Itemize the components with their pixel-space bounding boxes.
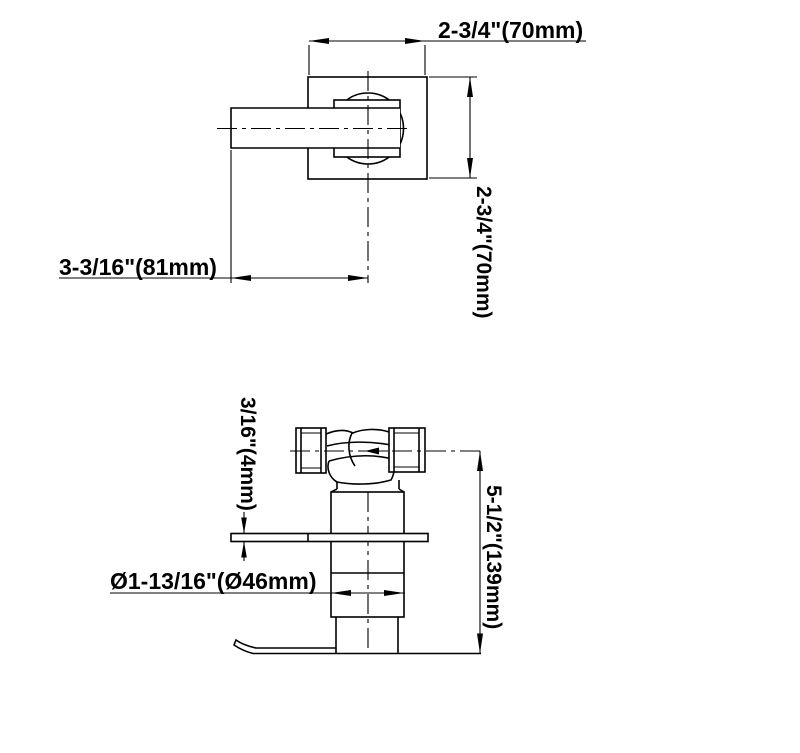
valve-body-top-curve <box>326 429 389 434</box>
arrowhead-up-icon <box>241 542 247 558</box>
arrowhead-up-icon <box>467 77 473 97</box>
dim-plate-height: 2-3/4"(70mm) <box>429 77 495 319</box>
arrowhead-left-icon <box>365 448 379 455</box>
dim-spout-reach-label: 3-3/16"(81mm) <box>59 254 217 280</box>
dim-body-diameter-label: Ø1-13/16"(Ø46mm) <box>110 568 317 594</box>
arrowhead-right-icon <box>405 38 425 44</box>
dim-plate-height-label: 2-3/4"(70mm) <box>472 186 495 319</box>
technical-drawing: 2-3/4"(70mm) 2-3/4"(70mm) 3-3/16"(81mm) <box>0 0 800 753</box>
flow-direction-arrow <box>365 448 388 455</box>
hex-nut-right <box>389 428 425 472</box>
top-view: 2-3/4"(70mm) 2-3/4"(70mm) 3-3/16"(81mm) <box>59 17 586 319</box>
side-view: 3/16"(4mm) Ø1-13/16"(Ø46mm) 5-1/2"(139mm… <box>110 397 505 654</box>
valve-body-upper-curve <box>327 442 391 446</box>
handle-lever <box>234 640 336 654</box>
valve-body-bell <box>328 456 394 484</box>
arrowhead-right-icon <box>348 275 368 281</box>
arrowhead-up-icon <box>477 451 483 471</box>
dim-plate-width-label: 2-3/4"(70mm) <box>438 17 583 43</box>
valve-body-seam-curve <box>349 433 355 466</box>
escutcheon-plate <box>231 534 428 542</box>
dim-total-height-label: 5-1/2"(139mm) <box>482 485 505 629</box>
dim-plate-width: 2-3/4"(70mm) <box>309 17 586 75</box>
arrowhead-down-icon <box>467 158 473 178</box>
dim-spout-reach: 3-3/16"(81mm) <box>59 150 368 283</box>
arrowhead-left-icon <box>231 275 251 281</box>
arrowhead-left-icon <box>309 38 329 44</box>
dim-plate-thickness-label: 3/16"(4mm) <box>236 397 259 511</box>
arrowhead-down-icon <box>477 634 483 654</box>
arrowhead-down-icon <box>241 518 247 534</box>
dim-total-height: 5-1/2"(139mm) <box>477 451 505 654</box>
